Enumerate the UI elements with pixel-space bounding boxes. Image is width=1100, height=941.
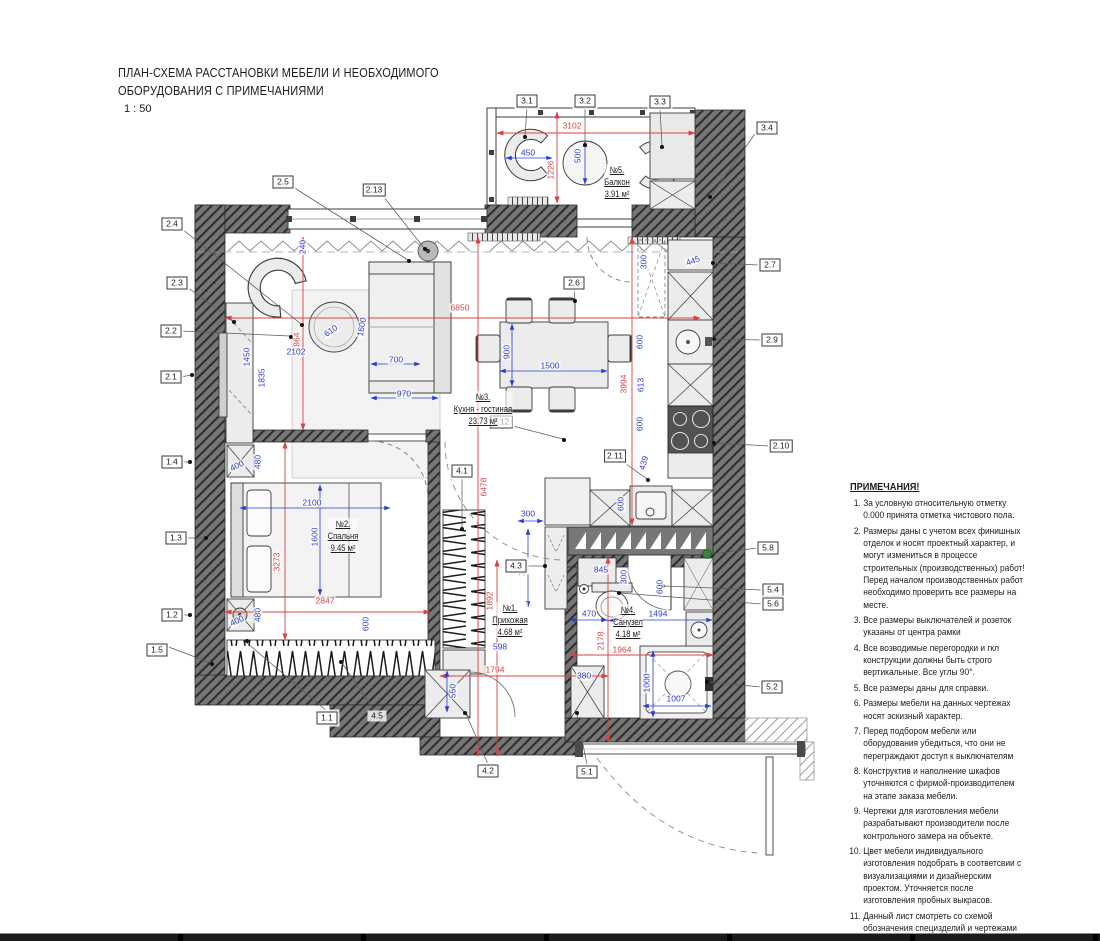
callout-marker-2.11: 2.11 <box>604 450 626 463</box>
dimension-red: 1226 <box>547 160 556 181</box>
dimension-blue: 600 <box>656 579 665 595</box>
callout-marker-2.13: 2.13 <box>363 184 386 197</box>
dimension-blue: 1000 <box>643 673 652 694</box>
callout-marker-5.4: 5.4 <box>763 584 784 597</box>
dimension-blue: 600 <box>617 496 626 512</box>
dimension-blue: 1494 <box>648 610 669 619</box>
note-item: Все возводимые перегородки и гкл констру… <box>863 643 1026 680</box>
room-label-№5.: №5.Балкон3.91 м² <box>602 164 632 200</box>
callout-marker-2.4: 2.4 <box>162 218 183 231</box>
floor-plan-sheet: ПЛАН-СХЕМА РАССТАНОВКИ МЕБЕЛИ И НЕОБХОДИ… <box>0 0 1100 941</box>
dimension-blue: 380 <box>576 672 592 681</box>
dimension-blue: 400 <box>228 459 246 474</box>
callout-marker-5.8: 5.8 <box>758 542 779 555</box>
note-item: Все размеры выключателей и розеток указа… <box>863 615 1026 640</box>
dimension-blue: 613 <box>637 377 646 393</box>
dimension-blue: 2102 <box>286 348 307 357</box>
notes-panel: ПРИМЕЧАНИЯ! За условную относительную от… <box>850 481 1026 941</box>
dimension-red: 3273 <box>273 552 282 573</box>
note-item: Чертежи для изготовления мебели разрабат… <box>863 806 1026 843</box>
callout-marker-1.4: 1.4 <box>162 456 183 469</box>
dimension-blue: 300 <box>620 569 629 585</box>
callout-marker-4.1: 4.1 <box>452 465 473 478</box>
dimension-blue: 300 <box>640 254 649 270</box>
callout-marker-1.2: 1.2 <box>162 609 183 622</box>
dimension-blue: 450 <box>520 149 536 158</box>
dimension-blue: 240 <box>299 239 308 255</box>
dimension-blue: 470 <box>581 610 597 619</box>
room-label-№3.: №3.Кухня - гостиная23.73 м² <box>449 391 518 427</box>
room-label-№2.: №2.Спальня9.45 м² <box>325 518 361 554</box>
callout-marker-3.1: 3.1 <box>517 95 538 108</box>
dimension-blue: 480 <box>254 607 263 623</box>
callout-marker-2.2: 2.2 <box>161 325 182 338</box>
callout-marker-2.3: 2.3 <box>167 277 188 290</box>
callout-marker-5.6: 5.6 <box>763 598 784 611</box>
callout-marker-5.2: 5.2 <box>762 681 783 694</box>
callout-marker-3.4: 3.4 <box>757 122 778 135</box>
note-item: Размеры мебели на данных чертежах носят … <box>863 698 1026 723</box>
callout-marker-4.5: 4.5 <box>368 711 387 722</box>
dimension-red: 6850 <box>450 304 471 313</box>
notes-list: За условную относительную отметку 0.000 … <box>850 498 1026 941</box>
dimension-red: 1794 <box>485 666 506 675</box>
callout-marker-5.1: 5.1 <box>577 766 598 779</box>
room-label-№4.: №4.Санузел4.18 м² <box>610 604 645 640</box>
callout-marker-2.9: 2.9 <box>762 334 783 347</box>
dimension-red: 3102 <box>562 122 583 131</box>
dimension-blue: 600 <box>636 416 645 432</box>
dimension-blue: 1835 <box>258 368 267 389</box>
dimension-blue: 600 <box>362 616 371 632</box>
dimension-blue: 1450 <box>243 347 252 368</box>
dimension-blue: 439 <box>638 454 651 472</box>
dimension-blue: 480 <box>254 454 263 470</box>
dimension-blue: 2100 <box>302 499 323 508</box>
callout-marker-1.1: 1.1 <box>317 712 338 725</box>
dimension-blue: 600 <box>636 334 645 350</box>
dimension-blue: 970 <box>396 390 412 399</box>
callout-marker-1.5: 1.5 <box>147 644 168 657</box>
callout-marker-2.6: 2.6 <box>564 277 585 290</box>
dimension-blue: 550 <box>449 683 458 699</box>
note-item: Размеры даны с учетом всех финишных отде… <box>863 526 1026 612</box>
dimension-blue: 400 <box>228 614 246 629</box>
note-item: Конструктив и наполнение шкафов уточняют… <box>863 766 1026 803</box>
dimension-blue: 610 <box>322 323 340 340</box>
callout-marker-3.3: 3.3 <box>650 96 671 109</box>
note-item: Цвет мебели индивидуального изготовления… <box>863 846 1026 908</box>
callout-marker-2.1: 2.1 <box>161 371 182 384</box>
dimension-blue: 598 <box>492 643 508 652</box>
dimension-blue: 845 <box>593 566 609 575</box>
dimension-blue: 1600 <box>356 316 368 338</box>
dimension-red: 3994 <box>620 374 629 395</box>
note-item: Перед подбором мебели или оборудования у… <box>863 726 1026 763</box>
dimension-red: 2847 <box>315 597 336 606</box>
callout-marker-4.3: 4.3 <box>506 560 527 573</box>
dimension-red: 1964 <box>612 646 633 655</box>
room-label-№1.: №1.Прихожая4.68 м² <box>489 602 531 638</box>
dimension-red: 6478 <box>480 477 489 498</box>
callout-marker-1.3: 1.3 <box>166 532 187 545</box>
callout-marker-3.2: 3.2 <box>575 95 596 108</box>
dimension-red: 2178 <box>597 631 606 652</box>
callout-marker-2.5: 2.5 <box>273 176 294 189</box>
callout-marker-4.2: 4.2 <box>478 765 499 778</box>
note-item: Все размеры даны для справки. <box>863 683 1026 695</box>
note-item: За условную относительную отметку 0.000 … <box>863 498 1026 523</box>
dimension-blue: 1007 <box>666 695 687 704</box>
dimension-blue: 1500 <box>540 362 561 371</box>
callout-marker-2.10: 2.10 <box>770 440 793 453</box>
notes-heading: ПРИМЕЧАНИЯ! <box>850 481 1026 493</box>
dimension-blue: 300 <box>520 510 536 519</box>
dimension-blue: 1600 <box>311 527 320 548</box>
titleblock-edge <box>0 933 1100 941</box>
dimension-blue: 700 <box>388 356 404 365</box>
callout-marker-2.7: 2.7 <box>760 259 781 272</box>
dimension-blue: 900 <box>503 344 512 360</box>
dimension-blue: 445 <box>684 254 702 268</box>
dimension-blue: 500 <box>574 148 583 164</box>
